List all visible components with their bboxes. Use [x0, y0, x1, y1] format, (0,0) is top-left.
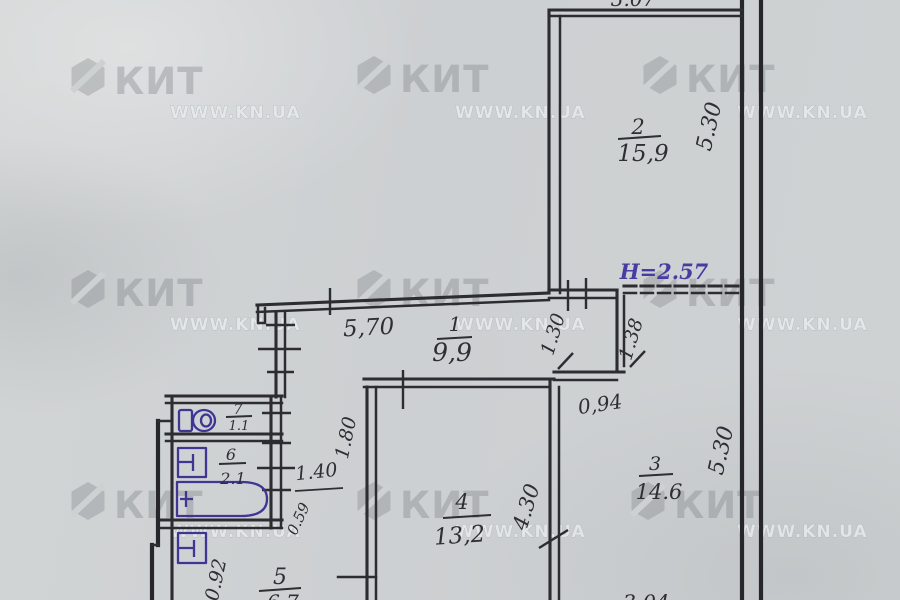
svg-text:КИТ: КИТ: [674, 484, 763, 527]
room-6-area: 2.1: [219, 469, 245, 488]
dim-hall-width: 1.40: [294, 459, 338, 485]
svg-text:КИТ: КИТ: [114, 272, 203, 315]
svg-text:КИТ: КИТ: [400, 484, 489, 527]
floor-plan-photo: КИТ КИТ КИТ КИТ КИТ КИТ КИТ КИТ: [0, 0, 900, 600]
room-number-underline: [639, 474, 673, 476]
watermark-url: WWW.KN.UA: [737, 315, 868, 335]
room-3-number: 3: [649, 453, 661, 475]
dimension-line: [295, 488, 343, 491]
kit-logo-icon: КИТ: [72, 270, 204, 315]
dim-room2-height: 5.30: [692, 100, 727, 153]
ceiling-height-note: Н=2.57: [619, 259, 709, 284]
watermark-url: WWW.KN.UA: [737, 103, 868, 123]
watermark-url: WWW.KN.UA: [455, 103, 586, 123]
dim-room3-height: 5.30: [704, 424, 739, 477]
room-5-number: 5: [273, 565, 287, 590]
room-1-number: 1: [449, 312, 462, 336]
watermark-url: WWW.KN.UA: [170, 103, 301, 123]
toilet-icon: [179, 410, 215, 431]
kit-brand-text: КИТ: [114, 60, 203, 103]
dim-closet-depth: 1.38: [615, 316, 648, 363]
room-7-area: 1.1: [229, 419, 250, 434]
kit-logo-icon: КИТ: [358, 56, 490, 101]
watermark-url: WWW.KN.UA: [737, 522, 868, 542]
room-3-area: 14.6: [636, 480, 683, 504]
kit-logo-icon: КИТ: [358, 482, 490, 527]
dim-opening-width: 0,94: [576, 389, 623, 419]
room-6-number: 6: [226, 445, 236, 464]
room-5-area: 6.7: [267, 590, 299, 600]
svg-text:КИТ: КИТ: [400, 58, 489, 101]
door-tick: [257, 413, 295, 490]
room-4-area: 13,2: [433, 521, 486, 551]
dim-top-width: 3.07: [611, 0, 656, 11]
kit-logo-icon: КИТ: [72, 58, 204, 103]
dim-hall-pass: 0.59: [283, 500, 314, 538]
dim-corridor-width: 5,70: [342, 314, 395, 343]
room-1-area: 9,9: [432, 338, 472, 367]
room-4-number: 4: [454, 490, 468, 514]
floor-plan-drawing: КИТ КИТ КИТ КИТ КИТ КИТ КИТ КИТ: [0, 0, 900, 600]
dim-hall-depth: 1.80: [331, 415, 361, 461]
room-number-underline: [219, 463, 246, 464]
room-2-number: 2: [630, 115, 644, 139]
svg-text:КИТ: КИТ: [400, 272, 489, 315]
door-tick: [568, 278, 586, 311]
room-2-area: 15,9: [617, 141, 668, 167]
sink-icon: [178, 448, 206, 477]
kit-logo-icon: КИТ: [644, 56, 776, 101]
watermark-grid: КИТ КИТ КИТ КИТ КИТ КИТ КИТ КИТ: [72, 56, 868, 542]
dim-room3-width: 3.04: [623, 591, 670, 600]
room-number-underline: [226, 416, 252, 417]
